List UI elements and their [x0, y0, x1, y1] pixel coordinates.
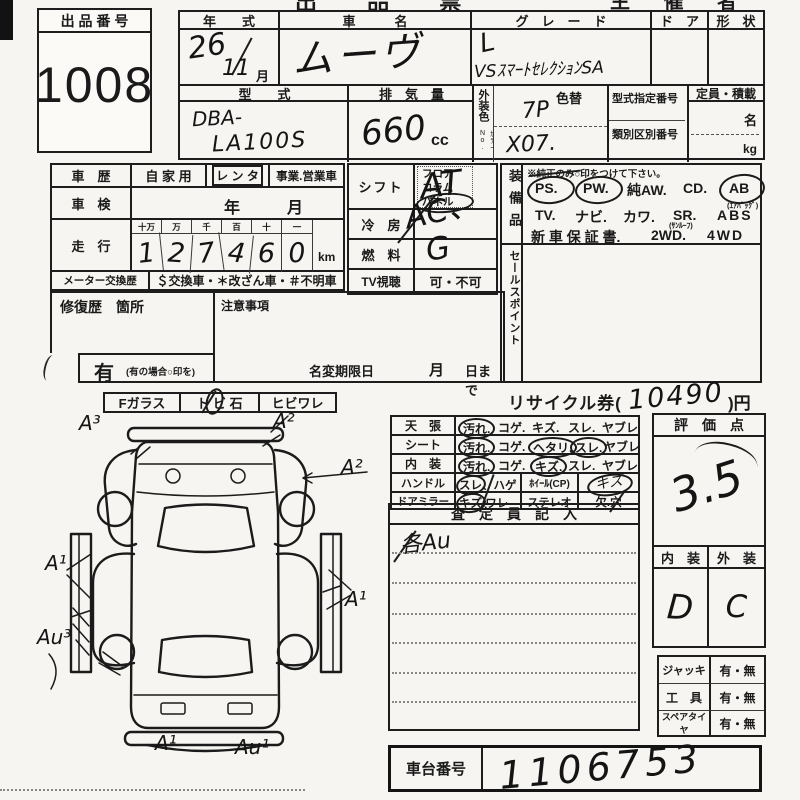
interior-score: D	[666, 590, 694, 626]
rename-month: 月	[429, 359, 444, 380]
rename-day: 日まで	[465, 361, 503, 399]
mileage-label: 走 行	[52, 220, 132, 272]
tv-label: TV視聴	[349, 270, 415, 293]
tools-options: 有・無	[711, 684, 764, 711]
type-designation-label: 型式指定番号	[612, 90, 678, 106]
condition-option: コゲ.	[498, 457, 525, 474]
condition-table: 天 張 汚れ. コゲ. キズ. スレ. ヤブレ シート 汚れ. コゲ. ヘタリ.…	[390, 415, 640, 510]
name-cell: ムーヴ	[280, 30, 472, 86]
capacity-divider	[691, 134, 759, 135]
ruled-line	[392, 552, 636, 554]
condition-option: スレ.	[568, 419, 595, 436]
repair-label: 修復歴 箇所	[60, 297, 144, 317]
score-header: 評 価 点	[654, 415, 764, 437]
repair-yes: 有	[94, 357, 114, 386]
condition-option: コゲ.	[498, 438, 525, 455]
auction-number: 1008	[39, 40, 150, 130]
tv-options: 可・不可	[415, 270, 496, 293]
mileage-digit: 2	[161, 233, 194, 273]
displacement-header: 排 気 量	[349, 86, 474, 102]
sales-point-box: セールスポイント	[500, 245, 762, 383]
auction-number-label: 出 品 番 号	[39, 10, 150, 33]
equip-tv: TV.	[535, 207, 556, 223]
crack-label: ヒビワレ	[260, 392, 337, 413]
headliner-options: 汚れ. コゲ. キズ. スレ. ヤブレ	[456, 417, 638, 436]
diagram-annotation: A²	[339, 455, 363, 479]
color-no-label: ｶﾗｰNo.	[479, 130, 496, 162]
condition-option: ヤブレ	[602, 457, 638, 474]
repair-yes-cell: 有 (有の場合○印を)	[78, 353, 213, 381]
class-no-label: 類別区別番号	[612, 126, 678, 142]
chassis-box: 車台番号 1106753	[388, 745, 762, 792]
diagram-annotation: Au³	[35, 625, 71, 649]
mileage-unit: km	[318, 250, 335, 264]
shape-cell	[709, 30, 763, 86]
notch-mask-bottom	[49, 379, 78, 386]
ruled-line	[392, 701, 636, 703]
grade-check: L	[477, 29, 497, 57]
spare-tire-label: スペアタイヤ	[659, 711, 711, 735]
model-code: LA100S	[211, 130, 307, 157]
ruled-line	[392, 613, 636, 615]
wheel-value-cell: キズ	[579, 474, 638, 493]
equip-warranty: 新 車 保 証 書.	[531, 227, 620, 247]
equip-navi: ナビ.	[575, 207, 607, 227]
diagram-annotation: A³	[77, 412, 101, 435]
accessories-box: ジャッキ 有・無 工 具 有・無 スペアタイヤ 有・無	[657, 655, 766, 737]
equip-leather: カワ.	[623, 207, 655, 227]
recycle-value: 10490	[627, 379, 725, 414]
color-label: 外装色	[477, 89, 488, 122]
displacement-unit: cc	[431, 132, 449, 150]
seat-options: 汚れ. コゲ. ヘタリ. スレ. ヤブレ	[456, 436, 638, 455]
grade-cell: L VSｽﾏｰﾄｾﾚｸｼｮﾝSA	[472, 30, 652, 86]
model-prefix: DBA-	[192, 107, 243, 130]
equipment-content: ※純正のみ○印をつけて下さい。 PS. PW. 純AW. CD. AB (ｴｱﾊ…	[523, 165, 760, 243]
digit-header: 十	[252, 220, 282, 234]
chassis-value: 1106753	[498, 739, 705, 795]
score-box: 評 価 点 3.5 内 装 外 装 D C	[652, 413, 766, 648]
assessor-header: 査 定 員 記 入	[390, 505, 638, 525]
color-no-value: X07.	[505, 133, 556, 158]
notes-label: 注意事項	[221, 297, 269, 314]
color-code: 7P	[521, 99, 550, 123]
color-label-strip: 外装色 ｶﾗｰNo.	[474, 86, 494, 162]
recycle-suffix: )円	[728, 389, 751, 414]
name-header: 車 名	[280, 12, 472, 30]
history-private: 自 家 用	[132, 165, 207, 188]
month-unit: 月	[256, 66, 269, 85]
auction-sheet: 出 品 票 主 催 者 用 出 品 番 号 1008 年 式 車 名 グ レ ー…	[0, 0, 800, 800]
diagram-annotation: Au¹	[233, 735, 269, 759]
seat-label: シート	[392, 436, 456, 455]
condition-option: ヤブレ	[604, 438, 640, 455]
equip-aw: 純AW.	[627, 180, 667, 200]
wheel-label: ﾎｲｰﾙ(CP)	[522, 474, 579, 493]
grade-value: VSｽﾏｰﾄｾﾚｸｼｮﾝSA	[474, 60, 604, 82]
capacity-header: 定員・積載	[689, 86, 763, 102]
mileage-digit: 6	[252, 234, 282, 272]
sales-point-label: セールスポイント	[506, 250, 522, 346]
history-commercial: 事業.営業車	[270, 165, 343, 188]
inspection-cell: 年 月	[132, 188, 343, 220]
headliner-label: 天 張	[392, 417, 456, 436]
meter-note: ＄交換車・＊改ざん車・＃不明車	[150, 272, 343, 289]
mileage-digit: 1	[130, 233, 164, 274]
exterior-score-cell: C	[709, 569, 764, 646]
condition-option: コゲ.	[498, 419, 525, 436]
jack-label: ジャッキ	[659, 657, 711, 684]
fuel-value: G	[424, 232, 452, 266]
interior-score-header: 内 装	[654, 545, 709, 569]
equipment-label: 装備品	[505, 169, 524, 235]
history-table: 車 歴 自 家 用 レ ン タ 事業.営業車 車 検 年 月 走 行 十万 万 …	[50, 163, 345, 291]
color-change-label: 色替	[556, 88, 582, 107]
door-header: ド ア	[652, 12, 709, 30]
diagram-annotation: A²	[271, 412, 295, 433]
inspection-month-unit: 月	[287, 194, 303, 218]
scan-blob	[0, 0, 13, 40]
mileage-grid: 十万 万 千 百 十 一 1 2 7 4 6 0	[132, 220, 312, 272]
type-no-divider	[609, 120, 685, 121]
digit-header: 万	[162, 220, 192, 234]
auction-number-box: 出 品 番 号 1008	[37, 8, 152, 153]
condition-option: ヤブレ	[602, 419, 638, 436]
condition-option: キズ.	[532, 419, 559, 436]
sales-point-strip: セールスポイント	[502, 245, 523, 381]
ruled-line	[392, 672, 636, 674]
repair-box: 修復歴 箇所 有 (有の場合○印を)	[50, 291, 215, 383]
persons-unit: 名	[744, 110, 757, 129]
car-name-value: ムーヴ	[291, 31, 425, 80]
history-rental-cell: レ ン タ	[207, 165, 270, 188]
interior-score-cell: D	[654, 569, 709, 646]
organizer-fragment: 主 催 者 用	[610, 0, 800, 10]
model-cell: 型 式 DBA- LA100S	[180, 86, 349, 162]
assessor-box: 査 定 員 記 入 各Au	[388, 503, 640, 731]
year-header: 年 式	[180, 12, 280, 30]
diagram-annotation: A¹	[153, 731, 177, 755]
tools-label: 工 具	[659, 684, 711, 711]
digit-header: 一	[282, 220, 312, 234]
capacity-cell: 定員・積載 名 kg	[689, 86, 763, 162]
history-label: 車 歴	[52, 165, 132, 188]
inspection-label: 車 検	[52, 188, 132, 220]
chassis-label: 車台番号	[391, 748, 483, 789]
year-cell: 26 11 月	[180, 30, 280, 86]
interior-options: 汚れ. コゲ. キズ. スレ. ヤブレ	[456, 455, 638, 474]
shape-header: 形 状	[709, 12, 763, 30]
type-no-cell: 型式指定番号 類別区別番号	[609, 86, 689, 162]
history-rental: レ ン タ	[212, 165, 263, 186]
displacement-value: 660	[359, 111, 427, 152]
exterior-color-cell: 外装色 ｶﾗｰNo. 色替 7P X07.	[474, 86, 609, 162]
equipment-box: 装備品 ※純正のみ○印をつけて下さい。 PS. PW. 純AW. CD. AB …	[500, 163, 762, 245]
fuel-label: 燃 料	[349, 240, 415, 270]
weight-unit: kg	[743, 142, 757, 156]
equip-4wd: 4WD	[707, 227, 744, 243]
car-damage-diagram: A³ A² A² A¹ A¹ Au³ A¹ Au¹	[35, 412, 375, 767]
diagram-annotation: A¹	[43, 551, 67, 575]
vehicle-table: 年 式 車 名 グ レ ー ド ド ア 形 状 26 11 月 ムーヴ L VS…	[178, 10, 765, 160]
mileage-digit: 0	[281, 233, 314, 273]
exterior-score: C	[726, 592, 748, 623]
scan-dotted-line	[0, 789, 305, 791]
equip-2wd: 2WD.	[651, 227, 686, 243]
door-cell	[652, 30, 709, 86]
grade-header: グ レ ー ド	[472, 12, 652, 30]
recycle-label: リサイクル券(	[508, 389, 622, 414]
equip-cd: CD.	[683, 180, 707, 196]
mileage-unit-cell: km	[312, 220, 343, 272]
condition-option: スレ.	[568, 457, 595, 474]
equip-abs: ABS	[717, 207, 753, 223]
equipment-label-strip: 装備品	[502, 165, 523, 243]
spare-tire-options: 有・無	[711, 711, 764, 735]
notes-box: 注意事項 名変期限日 月 日まで	[213, 291, 505, 383]
repair-yes-note: (有の場合○印を)	[126, 364, 195, 378]
rename-label: 名変期限日	[309, 361, 374, 380]
meter-label: メーター交換歴	[52, 272, 150, 289]
mileage-digit: 4	[220, 233, 254, 274]
ruled-line	[392, 642, 636, 644]
displacement-cell: 排 気 量 660 cc	[349, 86, 474, 162]
month-value: 11	[222, 58, 250, 80]
ruled-line	[392, 582, 636, 584]
handle-label: ハンドル	[392, 474, 456, 493]
mileage-digit: 7	[190, 232, 225, 274]
fglass-label: Fガラス	[103, 392, 181, 413]
model-header: 型 式	[180, 86, 349, 102]
interior-label: 内 装	[392, 455, 456, 474]
diagram-annotation: A¹	[343, 587, 367, 611]
exterior-score-header: 外 装	[709, 545, 764, 569]
color-divider	[494, 126, 607, 127]
jack-options: 有・無	[711, 657, 764, 684]
inspection-year-unit: 年	[224, 194, 240, 218]
